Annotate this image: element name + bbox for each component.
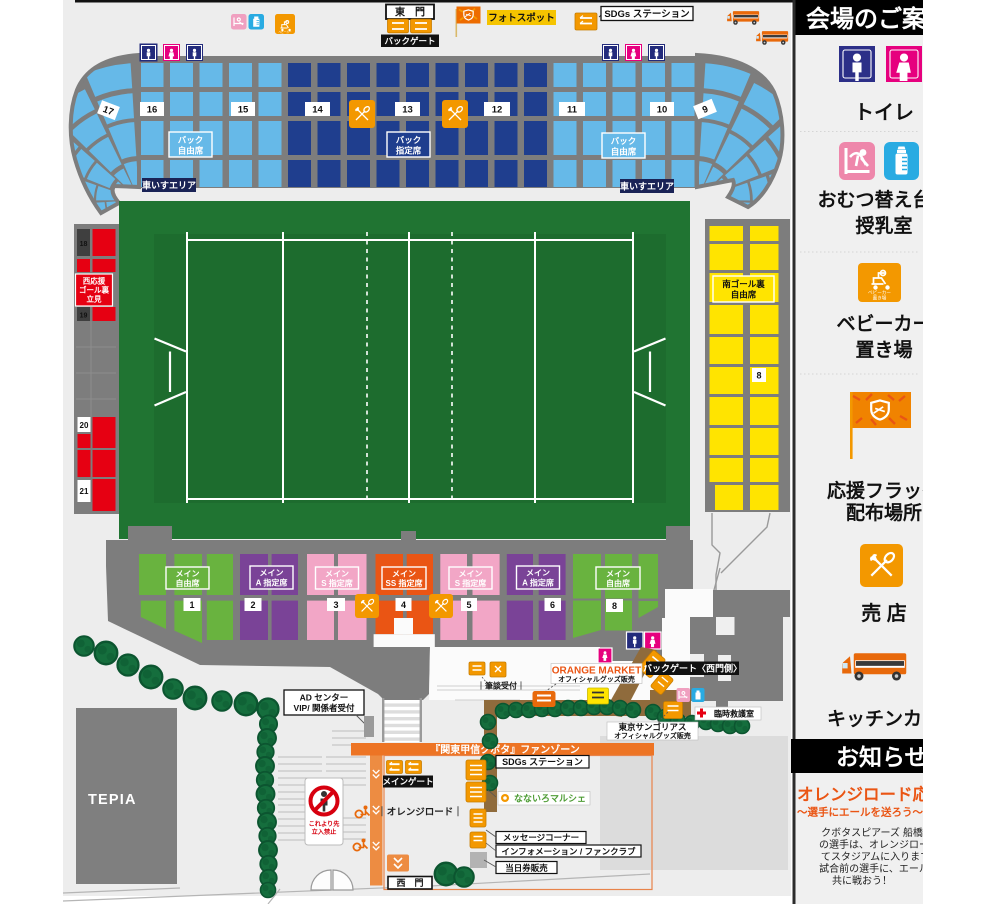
svg-text:｜オレンジロード｜: ｜オレンジロード｜ — [377, 806, 463, 818]
svg-text:3: 3 — [333, 600, 338, 610]
svg-text:14: 14 — [312, 105, 323, 116]
svg-text:インフォメーション / ファンクラブ: インフォメーション / ファンクラブ — [501, 847, 636, 857]
svg-text:トイレ: トイレ — [854, 102, 914, 124]
svg-text:てスタジアムに入ります。: てスタジアムに入ります。 — [821, 851, 939, 863]
svg-text:メイン: メイン — [176, 570, 200, 579]
svg-text:19: 19 — [80, 313, 88, 320]
svg-text:メイン: メイン — [325, 570, 349, 579]
svg-text:指定席: 指定席 — [396, 146, 422, 156]
svg-text:車いすエリア: 車いすエリア — [620, 181, 674, 192]
svg-text:これより先: これより先 — [309, 820, 341, 828]
svg-text:SDGs ステーション: SDGs ステーション — [604, 9, 689, 20]
svg-text:メイン: メイン — [260, 569, 284, 578]
svg-text:『関東甲信クボタ』ファンゾーン: 『関東甲信クボタ』ファンゾーン — [430, 743, 580, 756]
svg-text:AD センター: AD センター — [300, 693, 349, 703]
svg-text:8: 8 — [756, 371, 761, 381]
svg-text:置き場: 置き場 — [873, 295, 887, 302]
svg-text:12: 12 — [492, 105, 503, 116]
svg-text:21: 21 — [80, 487, 89, 496]
svg-text:東 門: 東 門 — [395, 6, 425, 19]
svg-text:西応援: 西応援 — [83, 276, 106, 286]
svg-text:オフィシャルグッズ販売: オフィシャルグッズ販売 — [614, 731, 691, 740]
svg-text:ORANGE MARKET: ORANGE MARKET — [552, 666, 641, 677]
svg-text:授乳室: 授乳室 — [855, 214, 912, 237]
svg-text:バック: バック — [178, 135, 204, 145]
svg-text:自由席: 自由席 — [731, 290, 757, 300]
svg-text:メインゲート: メインゲート — [382, 777, 433, 787]
svg-text:4: 4 — [401, 600, 406, 610]
svg-text:当日券販売: 当日券販売 — [505, 863, 548, 873]
svg-text:10: 10 — [657, 105, 668, 116]
svg-text:オフィシャルグッズ販売: オフィシャルグッズ販売 — [558, 675, 635, 684]
svg-text:自由席: 自由席 — [178, 146, 204, 156]
svg-text:1: 1 — [189, 600, 194, 610]
svg-text:S 指定席: S 指定席 — [321, 578, 353, 588]
svg-text:東京サンゴリアス: 東京サンゴリアス — [618, 722, 686, 732]
svg-text:メイン: メイン — [526, 569, 550, 578]
svg-text:16: 16 — [147, 105, 158, 116]
svg-text:2: 2 — [250, 600, 255, 610]
svg-text:自由席: 自由席 — [606, 578, 630, 588]
svg-text:S 指定席: S 指定席 — [455, 578, 487, 588]
svg-text:立見: 立見 — [87, 294, 102, 304]
svg-text:メッセージコーナー: メッセージコーナー — [503, 833, 579, 843]
svg-text:メイン: メイン — [606, 570, 630, 579]
svg-text:SDGs ステーション: SDGs ステーション — [502, 757, 583, 767]
svg-text:南ゴール裏: 南ゴール裏 — [722, 279, 765, 289]
svg-text:A 指定席: A 指定席 — [522, 578, 554, 588]
svg-text:なないろマルシェ: なないろマルシェ — [514, 794, 586, 804]
svg-text:バックゲート: バックゲート — [384, 36, 435, 46]
svg-text:A 指定席: A 指定席 — [256, 578, 288, 588]
svg-text:11: 11 — [567, 105, 578, 116]
svg-text:バック: バック — [396, 135, 422, 145]
svg-text:置き場: 置き場 — [855, 339, 912, 361]
svg-text:自由席: 自由席 — [611, 147, 637, 157]
svg-text:｜筆談受付｜: ｜筆談受付｜ — [477, 681, 525, 691]
svg-text:5: 5 — [466, 600, 471, 610]
svg-text:6: 6 — [550, 600, 555, 610]
svg-text:～選手にエールを送ろう～: ～選手にエールを送ろう～ — [797, 806, 923, 819]
svg-text:20: 20 — [80, 421, 89, 430]
svg-text:18: 18 — [80, 241, 88, 248]
svg-text:15: 15 — [238, 105, 249, 116]
svg-text:メイン: メイン — [459, 570, 483, 579]
svg-text:SS 指定席: SS 指定席 — [386, 578, 423, 588]
svg-text:車いすエリア: 車いすエリア — [142, 180, 196, 191]
svg-text:13: 13 — [402, 105, 413, 116]
svg-text:バック: バック — [611, 136, 637, 146]
svg-text:売 店: 売 店 — [861, 602, 907, 625]
svg-text:8: 8 — [612, 601, 617, 611]
svg-text:立入禁止: 立入禁止 — [312, 828, 338, 836]
svg-text:臨時救護室: 臨時救護室 — [714, 709, 754, 719]
svg-text:ベビーカー: ベビーカー — [836, 313, 931, 335]
svg-text:バックゲート〈西門側〉: バックゲート〈西門側〉 — [643, 663, 742, 674]
svg-text:自由席: 自由席 — [176, 578, 200, 588]
svg-text:TEPIA: TEPIA — [88, 792, 137, 808]
svg-text:フォトスポット: フォトスポット — [488, 12, 555, 24]
svg-text:メイン: メイン — [392, 570, 416, 579]
svg-text:VIP/ 関係者受付: VIP/ 関係者受付 — [294, 703, 355, 713]
svg-text:共に戦おう！: 共に戦おう！ — [832, 874, 892, 887]
svg-text:ベビーカー: ベビーカー — [279, 30, 292, 34]
svg-text:配布場所: 配布場所 — [846, 501, 922, 524]
svg-text:ゴール裏: ゴール裏 — [79, 285, 109, 295]
svg-text:お知らせ: お知らせ — [836, 744, 928, 770]
svg-text:西 門: 西 門 — [396, 878, 423, 888]
